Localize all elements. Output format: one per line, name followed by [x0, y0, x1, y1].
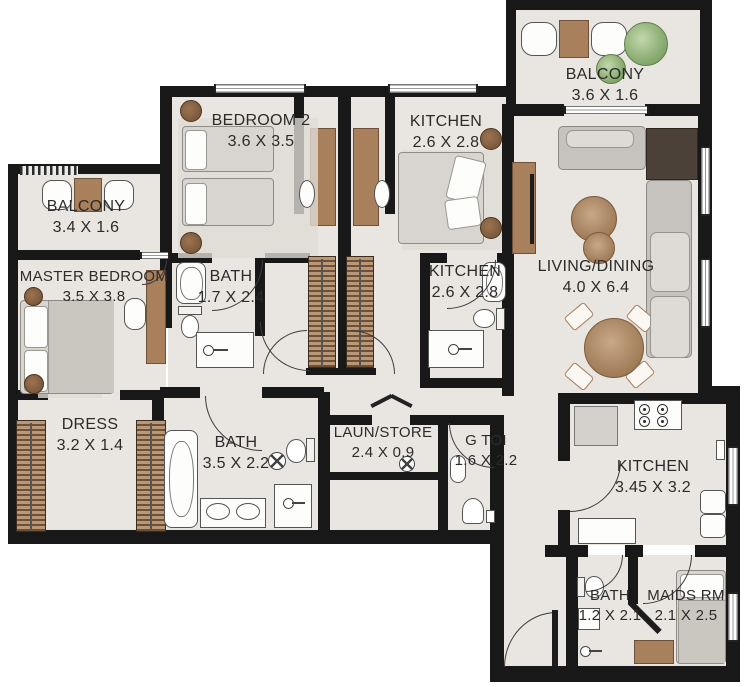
- wall: [506, 0, 516, 116]
- room-label-laun-store: LAUN/STORE 2.4 X 0.9: [324, 423, 442, 463]
- plant-pot-icon: [480, 217, 502, 239]
- stove-burner-icon: [657, 416, 668, 427]
- room-name: G TOI: [448, 431, 524, 451]
- wall: [322, 472, 438, 480]
- plant-pot-icon: [24, 374, 44, 394]
- fridge-icon: [700, 514, 726, 538]
- room-label-bath-main: BATH 3.5 X 2.2: [188, 432, 284, 474]
- toilet-icon: [462, 498, 484, 524]
- stool-icon: [374, 180, 390, 208]
- room-label-maids-rm: MAIDS RM 2.1 X 2.5: [634, 586, 738, 626]
- window: [214, 84, 306, 93]
- stove-burner-icon: [639, 416, 650, 427]
- room-name: BALCONY: [28, 196, 144, 217]
- entry-door-leaf: [552, 610, 558, 666]
- balcony-table-icon: [559, 20, 589, 58]
- bench-icon: [634, 640, 674, 664]
- pillow-icon: [24, 306, 48, 348]
- wall: [160, 387, 200, 398]
- wall: [545, 545, 588, 557]
- room-label-balcony-left: BALCONY 3.4 X 1.6: [28, 196, 144, 238]
- toilet-icon: [306, 438, 315, 462]
- sink-icon: [236, 503, 260, 520]
- kitchen-counter: [578, 518, 636, 544]
- wardrobe-icon: [308, 256, 336, 368]
- room-name: LIVING/DINING: [528, 256, 664, 277]
- toilet-icon: [496, 308, 505, 330]
- sink-icon: [206, 503, 230, 520]
- window: [564, 106, 649, 114]
- window: [388, 84, 478, 93]
- toilet-icon: [286, 439, 306, 463]
- stove-burner-icon: [657, 404, 668, 415]
- room-dims: 1.6 X 2.2: [448, 451, 524, 471]
- duvet: [48, 301, 114, 393]
- wall: [160, 86, 172, 262]
- sofa-cushion-icon: [650, 296, 690, 358]
- room-label-master-bedroom: MASTER BEDROOM 3.5 X 3.8: [6, 267, 182, 307]
- room-label-kitchen-top: KITCHEN 2.6 X 2.8: [398, 111, 494, 153]
- room-dims: 4.0 X 6.4: [528, 277, 664, 298]
- kitchen-counter: [574, 406, 618, 446]
- room-name: MASTER BEDROOM: [6, 267, 182, 287]
- lounge-seat-icon: [521, 22, 557, 56]
- room-name: BATH: [192, 266, 270, 287]
- room-name: KITCHEN: [398, 111, 494, 132]
- room-name: DRESS: [34, 414, 146, 435]
- room-dims: 2.6 X 2.8: [416, 282, 514, 303]
- stool-icon: [299, 180, 315, 208]
- window: [140, 252, 170, 259]
- dresser-icon: [353, 128, 379, 226]
- room-label-bedroom2: BEDROOM 2 3.6 X 3.5: [196, 110, 326, 152]
- dining-table-icon: [584, 318, 644, 378]
- window: [20, 166, 78, 175]
- shower-head-icon: [213, 349, 228, 351]
- room-label-g-toi: G TOI 1.6 X 2.2: [448, 431, 524, 471]
- room-dims: 3.5 X 2.2: [188, 453, 284, 474]
- window: [701, 258, 710, 328]
- plant-icon: [624, 22, 668, 66]
- room-name: BEDROOM 2: [196, 110, 326, 131]
- room-label-balcony-top: BALCONY 3.6 X 1.6: [540, 64, 670, 106]
- room-dims: 3.4 X 1.6: [28, 217, 144, 238]
- sink-icon: [486, 510, 495, 523]
- room-dims: 2.4 X 0.9: [324, 443, 442, 463]
- room-label-kitchen-main: KITCHEN 3.45 X 3.2: [598, 456, 708, 498]
- lounge-seat-icon: [591, 22, 627, 56]
- room-dims: 3.45 X 3.2: [598, 477, 708, 498]
- room-dims: 3.6 X 1.6: [540, 85, 670, 106]
- window: [701, 146, 710, 216]
- floor-plan: BALCONY 3.6 X 1.6 BEDROOM 2 3.6 X 3.5 KI…: [0, 0, 750, 687]
- pillow-icon: [185, 183, 207, 225]
- room-dims: 1.7 X 2.4: [192, 287, 270, 308]
- shower-head-icon: [292, 502, 305, 504]
- tv-icon: [530, 174, 534, 244]
- room-name: BATH: [188, 432, 284, 453]
- wall: [262, 387, 324, 398]
- room-dims: 2.1 X 2.5: [634, 606, 738, 626]
- room-dims: 3.5 X 3.8: [6, 287, 182, 307]
- room-name: KITCHEN: [598, 456, 708, 477]
- wall: [8, 250, 140, 260]
- room-dims: 2.6 X 2.8: [398, 132, 494, 153]
- shower-head-icon: [458, 348, 472, 350]
- room-label-bath-master: BATH 1.7 X 2.4: [192, 266, 270, 308]
- room-label-kitchen-mid: KITCHEN 2.6 X 2.8: [416, 261, 514, 303]
- side-table-icon: [646, 128, 698, 180]
- pillow-icon: [444, 196, 482, 230]
- shower-head-icon: [589, 650, 602, 652]
- wall: [700, 0, 712, 118]
- wall: [558, 393, 570, 461]
- room-dims: 3.6 X 3.5: [196, 131, 326, 152]
- room-label-dress: DRESS 3.2 X 1.4: [34, 414, 146, 456]
- room-name: BALCONY: [540, 64, 670, 85]
- toilet-icon: [473, 309, 495, 328]
- plant-pot-icon: [180, 232, 202, 254]
- wall: [420, 378, 514, 388]
- wall: [490, 666, 740, 682]
- room-name: KITCHEN: [416, 261, 514, 282]
- room-name: MAIDS RM: [634, 586, 738, 606]
- room-label-living-dining: LIVING/DINING 4.0 X 6.4: [528, 256, 664, 298]
- wall: [8, 530, 502, 544]
- sofa-cushion-icon: [566, 130, 634, 148]
- wall: [506, 0, 712, 10]
- stove-burner-icon: [639, 404, 650, 415]
- window: [728, 446, 738, 506]
- room-dims: 3.2 X 1.4: [34, 435, 146, 456]
- room-name: LAUN/STORE: [324, 423, 442, 443]
- sink-icon: [716, 440, 725, 460]
